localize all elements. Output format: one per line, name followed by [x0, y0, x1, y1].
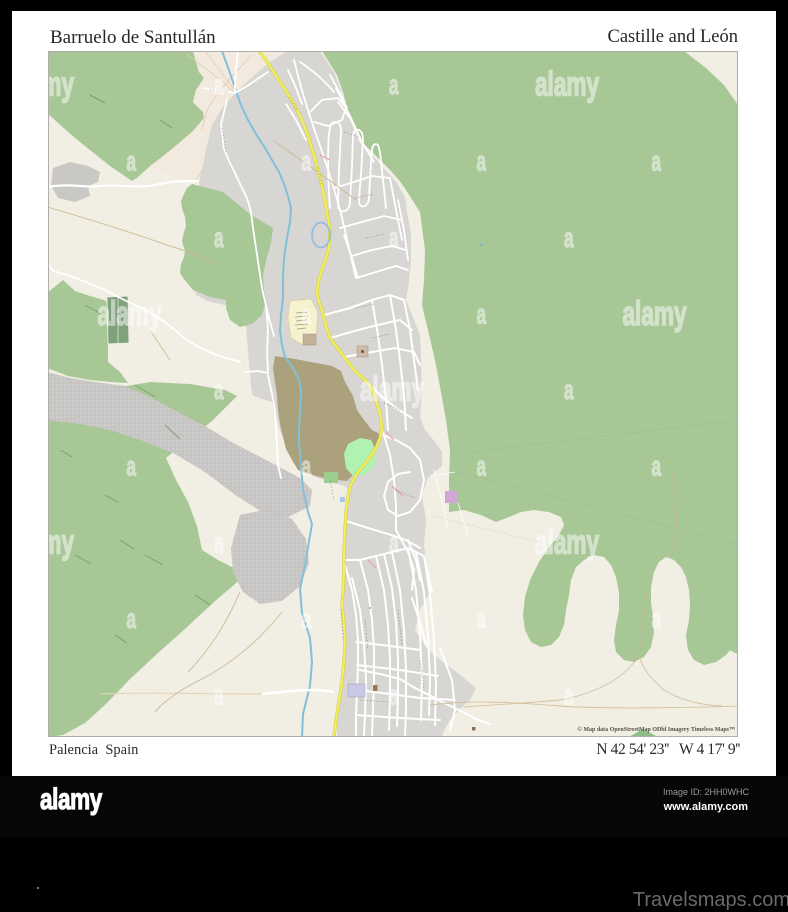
svg-text:a: a — [302, 298, 312, 329]
svg-text:a: a — [214, 679, 224, 710]
svg-text:a: a — [564, 222, 574, 253]
svg-text:a: a — [127, 145, 137, 176]
svg-text:a: a — [652, 145, 662, 176]
svg-text:alamy: alamy — [98, 295, 162, 333]
svg-text:alamy: alamy — [623, 295, 687, 333]
svg-text:a: a — [302, 145, 312, 176]
svg-text:a: a — [389, 527, 399, 558]
svg-text:a: a — [127, 603, 137, 634]
svg-text:a: a — [564, 679, 574, 710]
svg-text:a: a — [477, 145, 487, 176]
svg-text:a: a — [652, 603, 662, 634]
svg-text:a: a — [564, 374, 574, 405]
svg-text:alamy: alamy — [360, 371, 424, 409]
svg-text:a: a — [302, 603, 312, 634]
svg-text:alamy: alamy — [48, 66, 74, 104]
svg-text:a: a — [477, 603, 487, 634]
svg-text:a: a — [389, 222, 399, 253]
svg-text:© Map data OpenStreetMap ODbl: © Map data OpenStreetMap ODbl Imagery Ti… — [577, 726, 735, 733]
svg-text:a: a — [214, 527, 224, 558]
svg-text:a: a — [652, 450, 662, 481]
svg-text:a: a — [127, 450, 137, 481]
svg-text:a: a — [389, 69, 399, 100]
svg-text:a: a — [214, 222, 224, 253]
svg-text:alamy: alamy — [535, 66, 599, 104]
svg-text:a: a — [477, 450, 487, 481]
svg-text:a: a — [302, 450, 312, 481]
svg-text:alamy: alamy — [535, 524, 599, 562]
svg-text:alamy: alamy — [48, 524, 74, 562]
svg-text:a: a — [477, 298, 487, 329]
svg-text:a: a — [389, 679, 399, 710]
svg-text:a: a — [214, 69, 224, 100]
svg-text:a: a — [214, 374, 224, 405]
